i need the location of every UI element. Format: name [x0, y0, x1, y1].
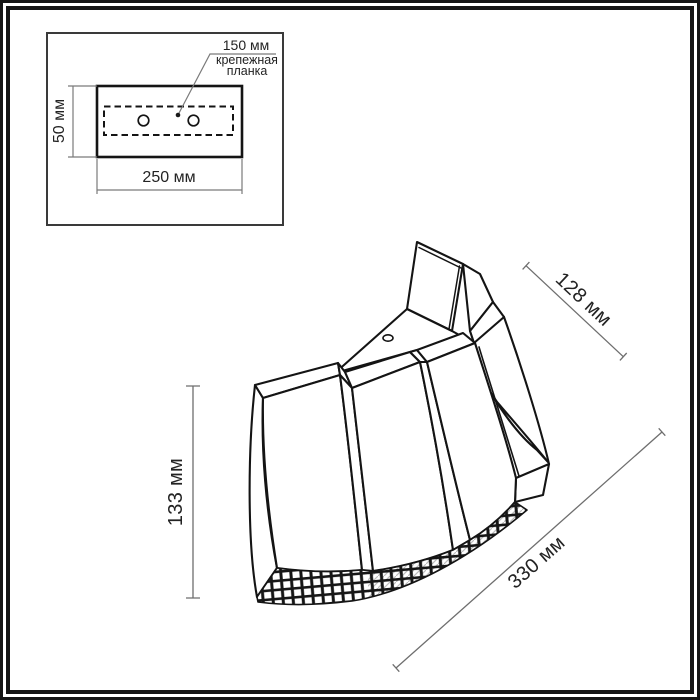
dimension-drawing-page: 150 мм крепежная планка 50 мм 250 мм 128… [0, 0, 700, 700]
sconce-drawing [250, 242, 549, 605]
mounting-plate [97, 86, 242, 157]
drawing-canvas [0, 0, 700, 700]
mounting-hole-left [138, 115, 149, 126]
screw-hole [383, 335, 393, 341]
inset-width-label: 250 мм [127, 170, 211, 187]
bracket-callout-label: крепежная планка [207, 55, 287, 76]
inset-height-label: 50 мм [52, 81, 70, 161]
callout-line-2: планка [207, 66, 287, 77]
height-dimension-label: 133 мм [166, 442, 190, 542]
end-cap [515, 464, 549, 502]
inset-holes-distance-label: 150 мм [204, 38, 288, 53]
leader-dot [176, 113, 181, 118]
mounting-hole-right [188, 115, 199, 126]
